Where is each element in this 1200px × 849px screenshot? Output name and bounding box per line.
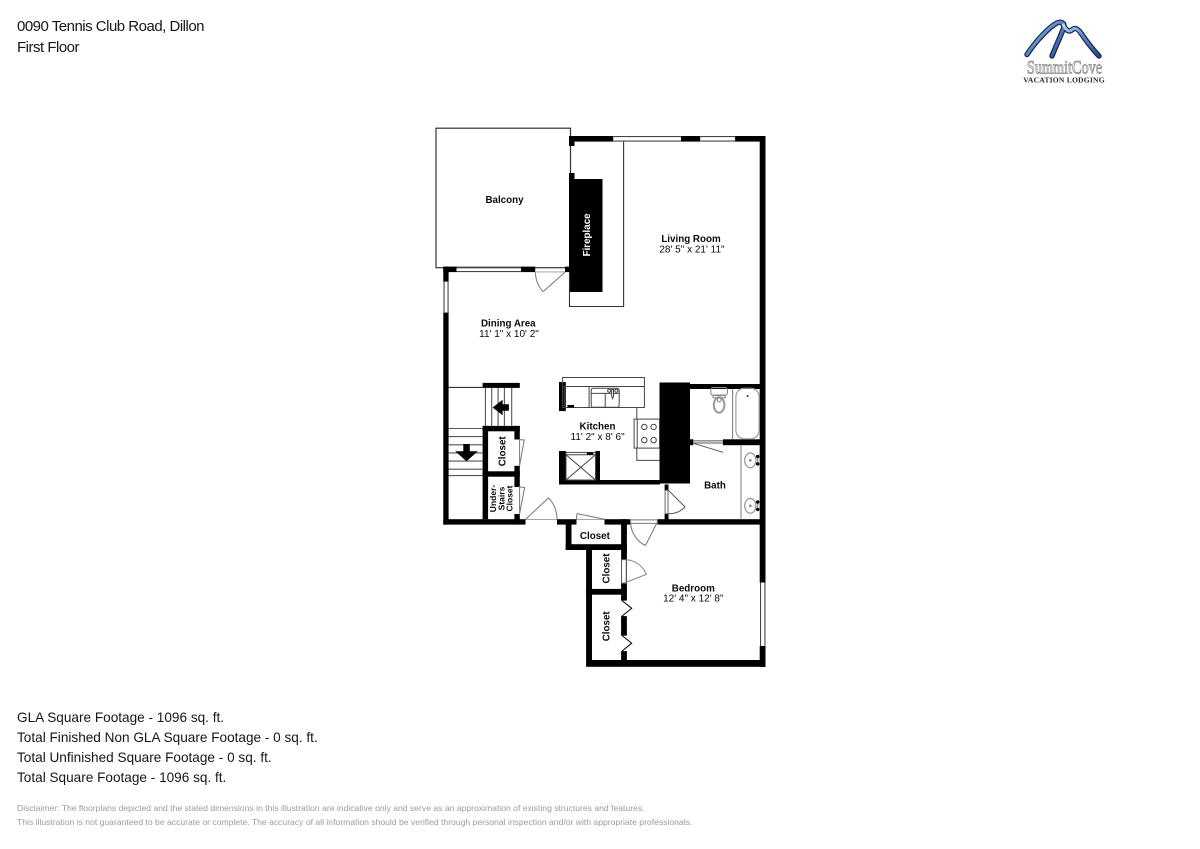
- svg-text:Closet: Closet: [580, 531, 611, 542]
- svg-text:11' 2" x 8' 6": 11' 2" x 8' 6": [571, 432, 626, 443]
- svg-text:VACATION LODGING: VACATION LODGING: [1023, 76, 1105, 85]
- svg-text:Closet: Closet: [601, 611, 612, 642]
- svg-text:Fireplace: Fireplace: [582, 213, 593, 257]
- svg-text:11' 1" x 10' 2": 11' 1" x 10' 2": [479, 329, 539, 340]
- svg-text:Dining Area: Dining Area: [481, 318, 536, 329]
- svg-text:Balcony: Balcony: [485, 195, 524, 206]
- svg-text:Closet: Closet: [601, 553, 612, 584]
- svg-text:Closet: Closet: [504, 485, 514, 511]
- svg-text:Bath: Bath: [704, 481, 726, 492]
- svg-text:Kitchen: Kitchen: [580, 421, 616, 432]
- svg-text:Living Room: Living Room: [661, 234, 721, 245]
- svg-text:28' 5" x 21' 11": 28' 5" x 21' 11": [659, 245, 725, 256]
- svg-text:Closet: Closet: [497, 436, 508, 467]
- svg-text:12' 4" x 12' 8": 12' 4" x 12' 8": [663, 594, 724, 605]
